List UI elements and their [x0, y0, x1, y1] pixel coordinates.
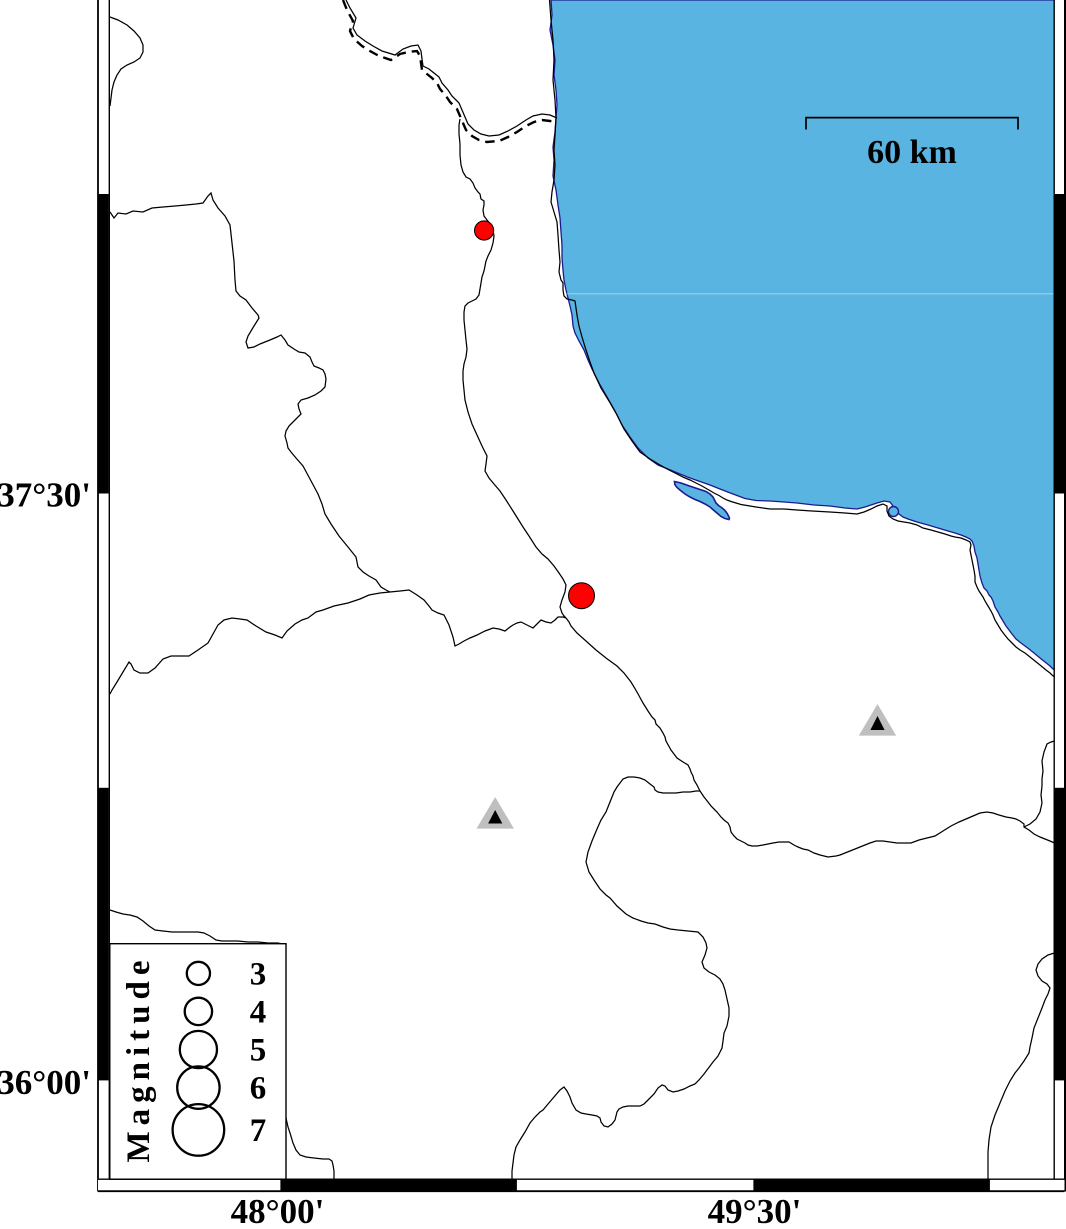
svg-text:4: 4 [250, 995, 267, 1031]
svg-text:60 km: 60 km [867, 134, 957, 171]
svg-text:37°30': 37°30' [0, 476, 91, 515]
svg-text:Magnitude: Magnitude [121, 954, 157, 1162]
svg-text:36°00': 36°00' [0, 1063, 91, 1102]
svg-text:7: 7 [250, 1113, 267, 1149]
svg-text:49°30': 49°30' [708, 1192, 802, 1229]
svg-text:3: 3 [250, 957, 267, 993]
svg-text:48°00': 48°00' [231, 1192, 325, 1229]
svg-text:6: 6 [250, 1071, 267, 1107]
svg-text:5: 5 [250, 1033, 267, 1069]
